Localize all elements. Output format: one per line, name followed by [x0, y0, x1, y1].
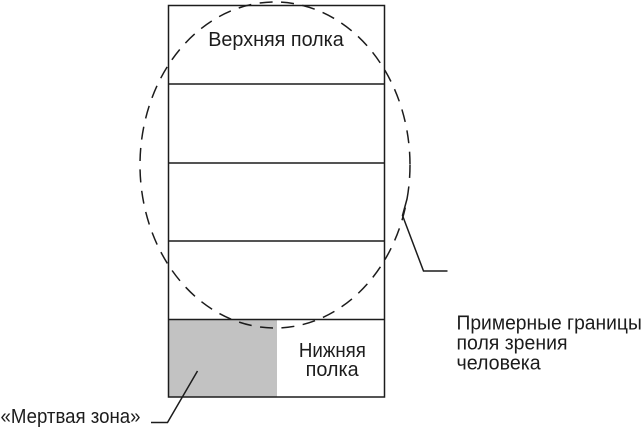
- svg-text:Верхняя полка: Верхняя полка: [208, 28, 344, 51]
- svg-text:человека: человека: [457, 352, 542, 375]
- svg-text:«Мертвая зона»: «Мертвая зона»: [1, 405, 141, 428]
- svg-text:полка: полка: [306, 358, 360, 381]
